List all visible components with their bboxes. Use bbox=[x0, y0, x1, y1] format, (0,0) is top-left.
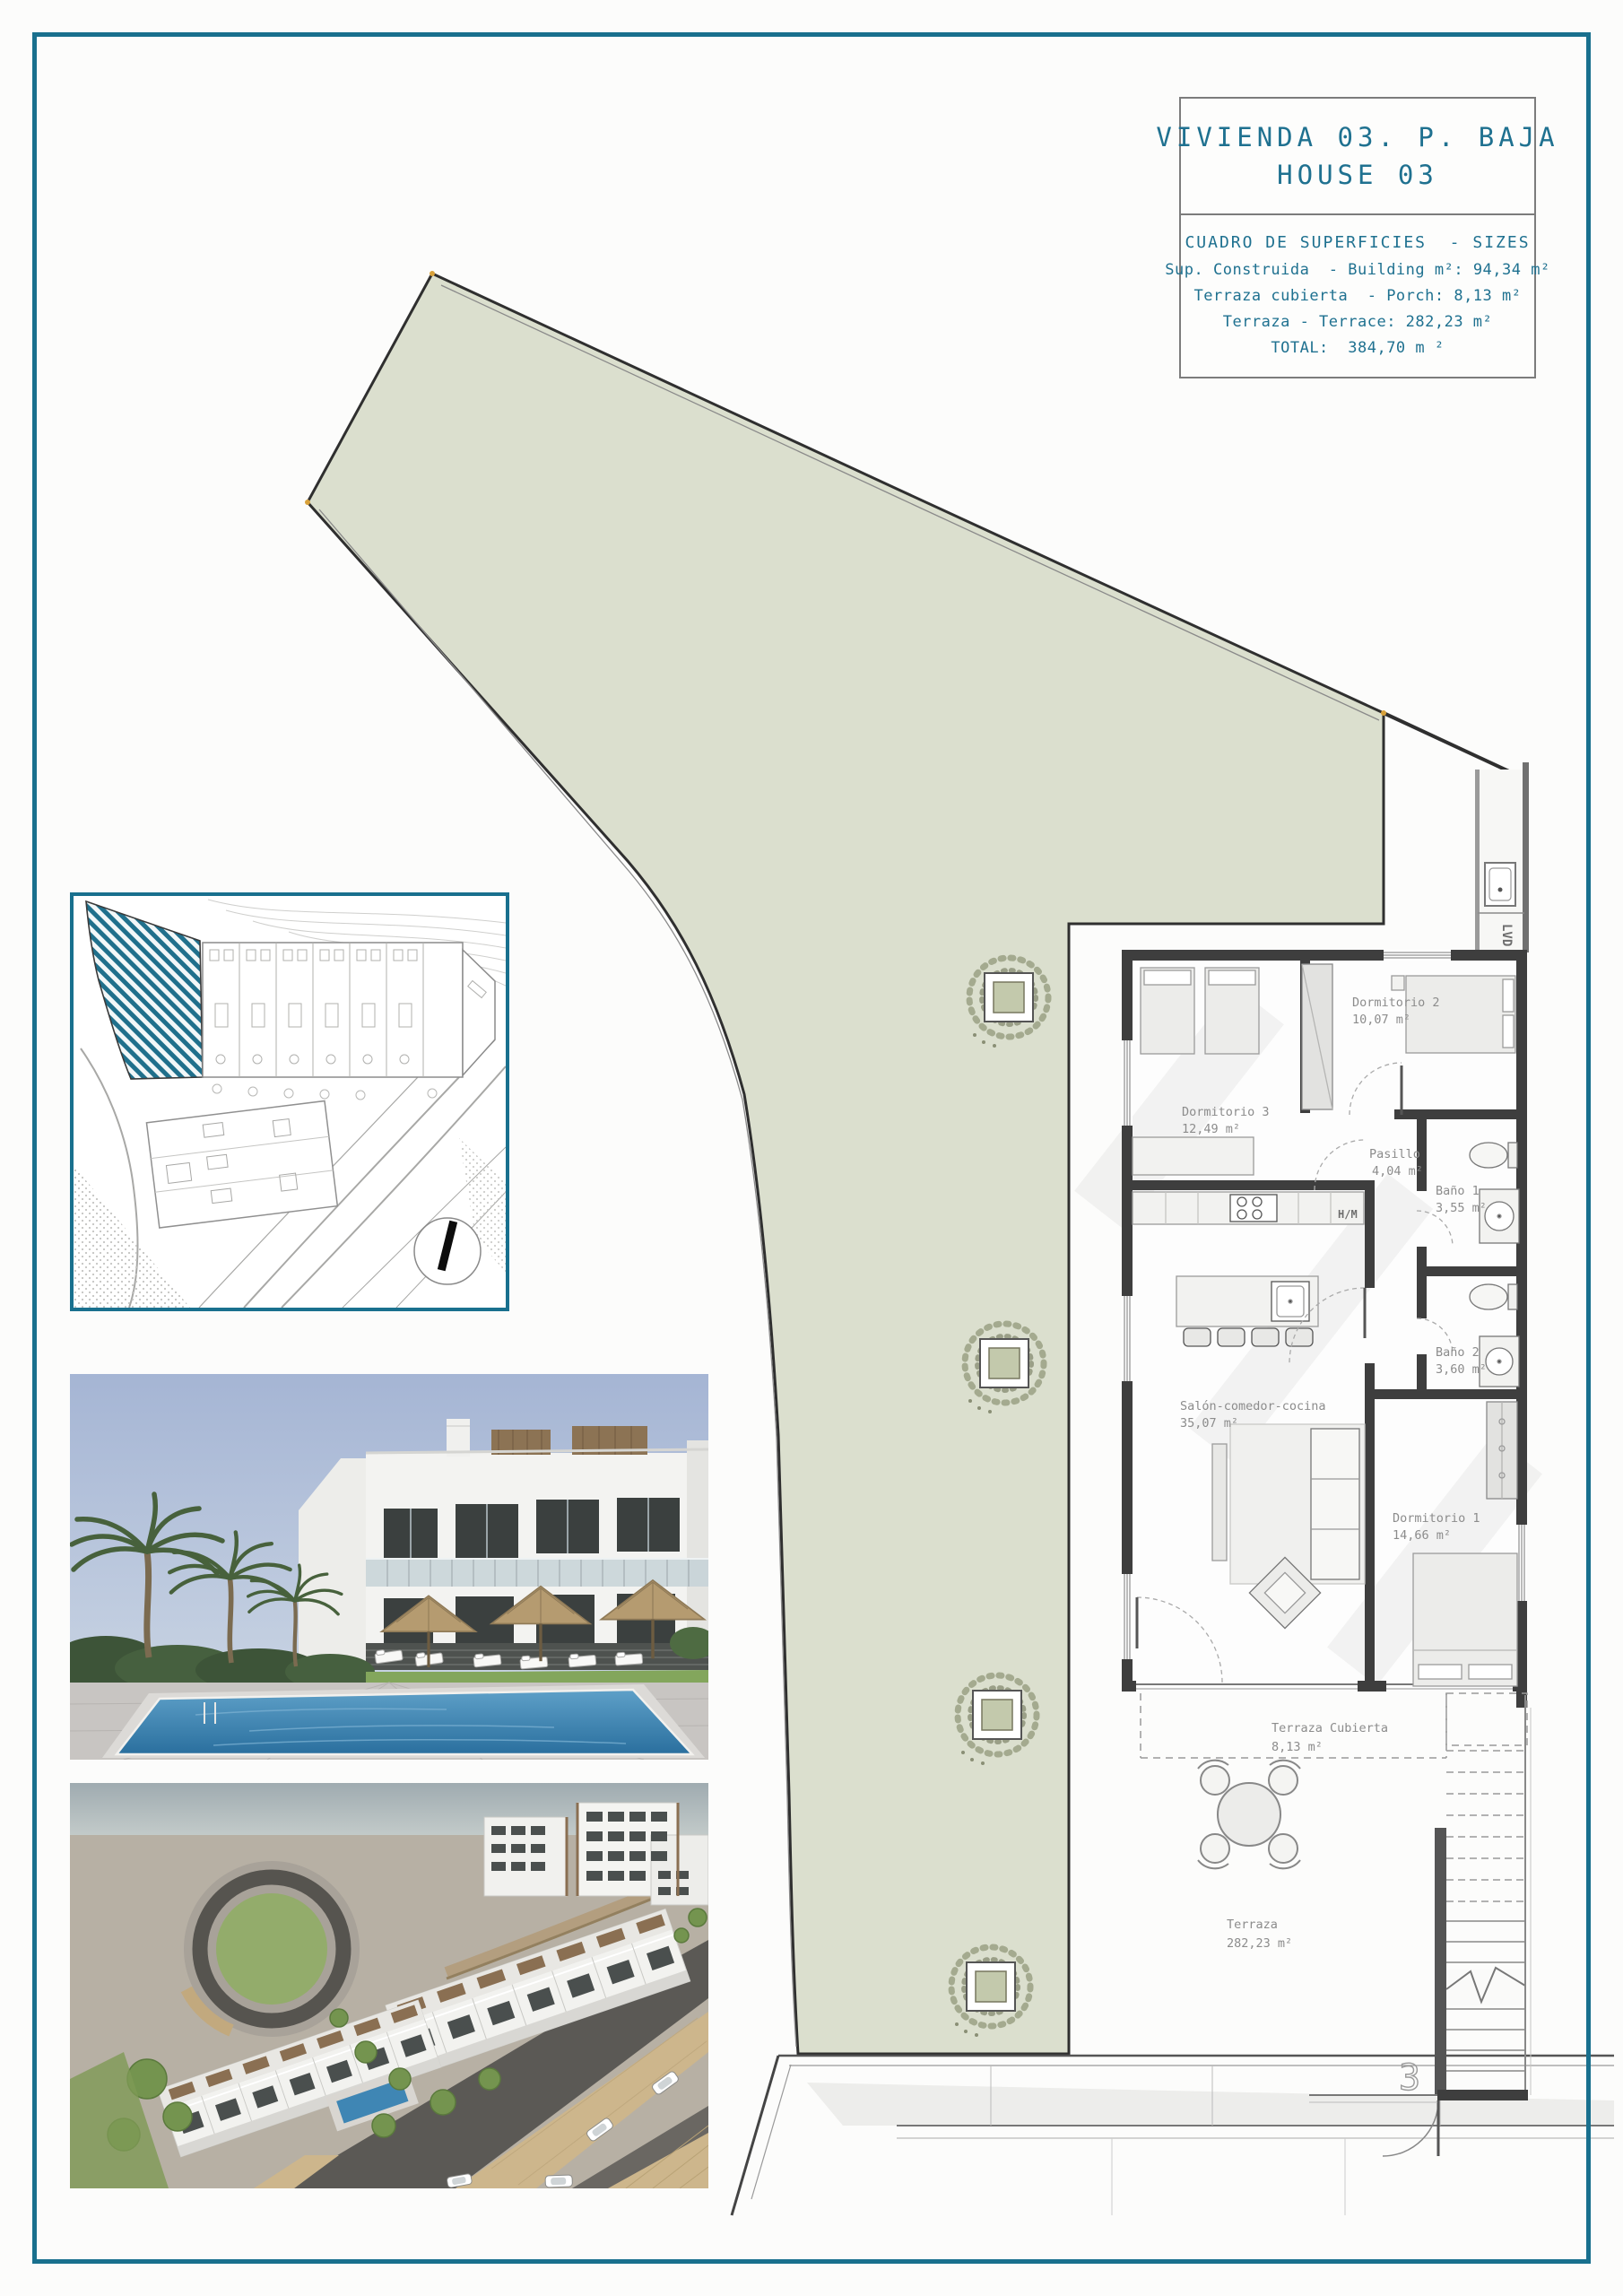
north-indicator bbox=[414, 1218, 481, 1284]
sheet-title-es: VIVIENDA 03. P. BAJA bbox=[1156, 122, 1558, 152]
terrace-table bbox=[1198, 1761, 1300, 1869]
room-label: Pasillo bbox=[1369, 1147, 1420, 1161]
sizes-line-terrace: Terraza - Terrace: 282,23 m² bbox=[1223, 310, 1493, 334]
laundry-strip: LVD bbox=[1475, 762, 1529, 952]
room-area: 8,13 m² bbox=[1271, 1740, 1323, 1754]
sidewalk-lines bbox=[732, 2056, 1614, 2215]
site-plan-map bbox=[74, 896, 506, 1308]
laundry-label: LVD bbox=[1499, 924, 1514, 946]
apartment-blocks bbox=[484, 1803, 708, 1905]
pool-photo bbox=[70, 1374, 708, 1760]
room-area: 10,07 m² bbox=[1352, 1013, 1410, 1027]
room-area: 14,66 m² bbox=[1393, 1528, 1451, 1543]
room-label: Salón-comedor-cocina bbox=[1180, 1399, 1326, 1413]
washer-label: H/M bbox=[1338, 1208, 1358, 1221]
room-label: Terraza Cubierta bbox=[1271, 1721, 1388, 1735]
room-label: Terraza bbox=[1227, 1918, 1278, 1932]
room-label: Dormitorio 1 bbox=[1393, 1511, 1480, 1526]
room-area: 35,07 m² bbox=[1180, 1416, 1238, 1431]
room-area: 3,60 m² bbox=[1436, 1362, 1487, 1377]
pool bbox=[102, 1684, 705, 1758]
sizes-line-porch: Terraza cubierta - Porch: 8,13 m² bbox=[1194, 284, 1522, 308]
room-label: Dormitorio 2 bbox=[1352, 996, 1440, 1010]
sheet-title-en: HOUSE 03 bbox=[1277, 160, 1438, 190]
title-block: VIVIENDA 03. P. BAJA HOUSE 03 CUADRO DE … bbox=[1179, 97, 1536, 378]
aerial-photo bbox=[70, 1783, 708, 2188]
sizes-line-total: TOTAL: 384,70 m ² bbox=[1271, 336, 1444, 360]
room-label: Baño 2 bbox=[1436, 1345, 1480, 1360]
plan-sheet: LVD bbox=[0, 0, 1623, 2296]
room-area: 12,49 m² bbox=[1182, 1122, 1240, 1136]
room-area: 282,23 m² bbox=[1227, 1936, 1292, 1951]
room-area: 4,04 m² bbox=[1372, 1164, 1423, 1178]
lower-building bbox=[146, 1101, 337, 1228]
room-label: Baño 1 bbox=[1436, 1184, 1480, 1198]
site-plan-inset bbox=[70, 892, 509, 1311]
room-area: 3,55 m² bbox=[1436, 1201, 1487, 1215]
room-label: Dormitorio 3 bbox=[1182, 1105, 1270, 1119]
sizes-heading: CUADRO DE SUPERFICIES - SIZES bbox=[1185, 233, 1530, 252]
townhouse-row bbox=[203, 943, 495, 1100]
sizes-line-building: Sup. Construida - Building m²: 94,34 m² bbox=[1165, 258, 1549, 282]
house-number: 3 bbox=[1399, 2057, 1420, 2099]
